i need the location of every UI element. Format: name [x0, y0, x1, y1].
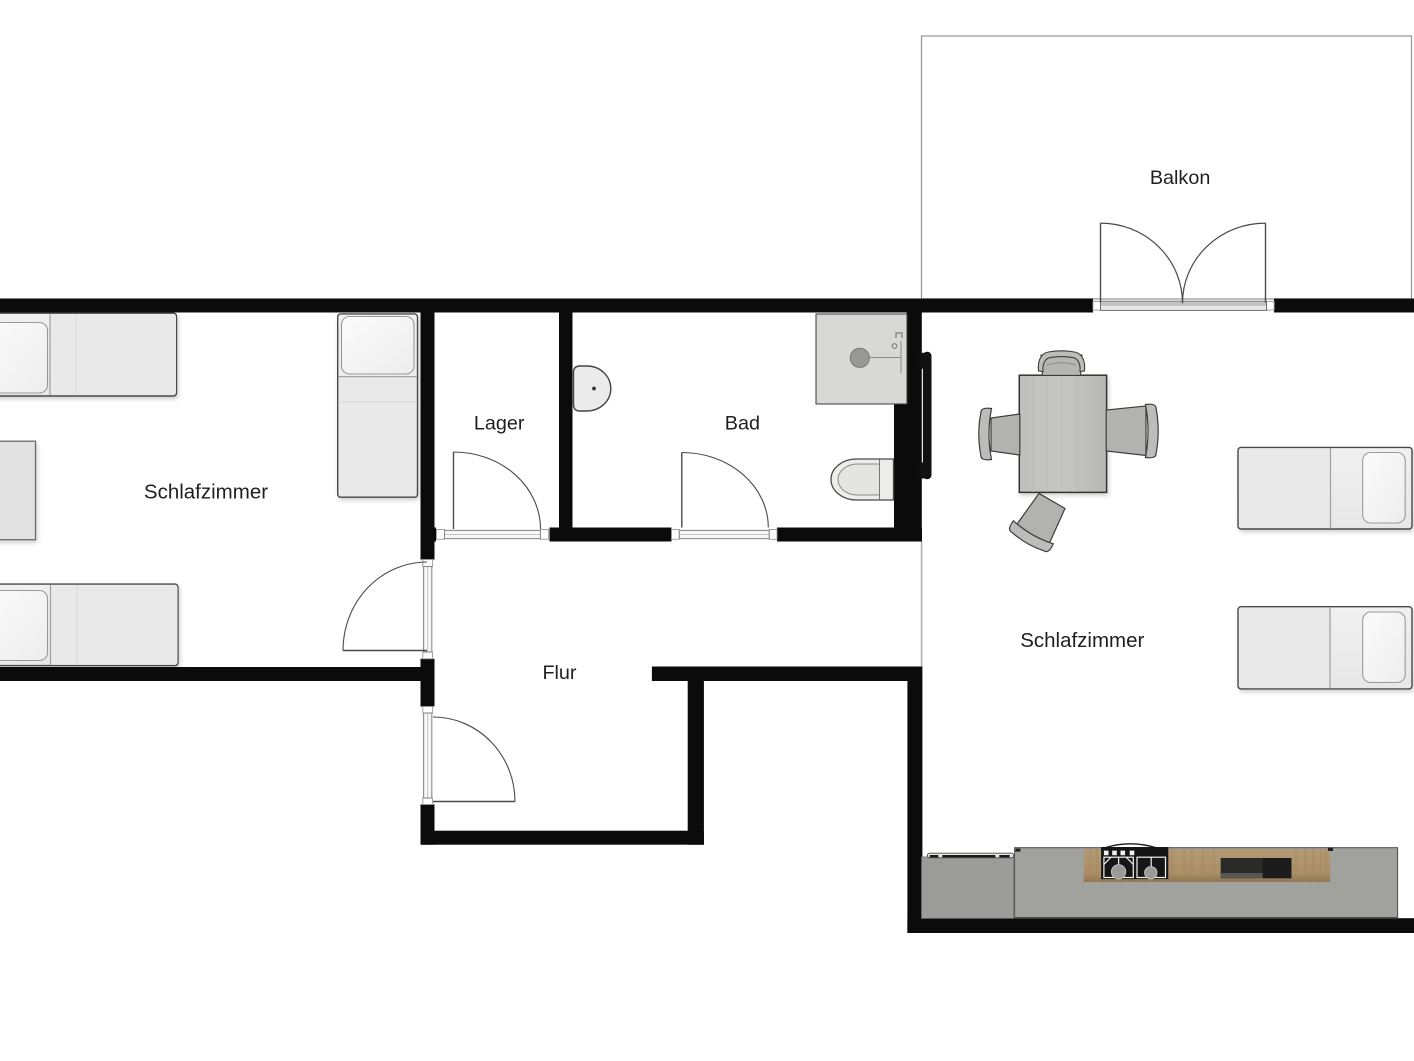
svg-text:Balkon: Balkon	[1150, 167, 1210, 189]
svg-text:Bad: Bad	[725, 413, 760, 435]
svg-text:Schlafzimmer: Schlafzimmer	[144, 481, 268, 504]
svg-text:Lager: Lager	[474, 413, 525, 435]
svg-text:Schlafzimmer: Schlafzimmer	[1020, 629, 1144, 652]
svg-text:Flur: Flur	[542, 662, 576, 684]
